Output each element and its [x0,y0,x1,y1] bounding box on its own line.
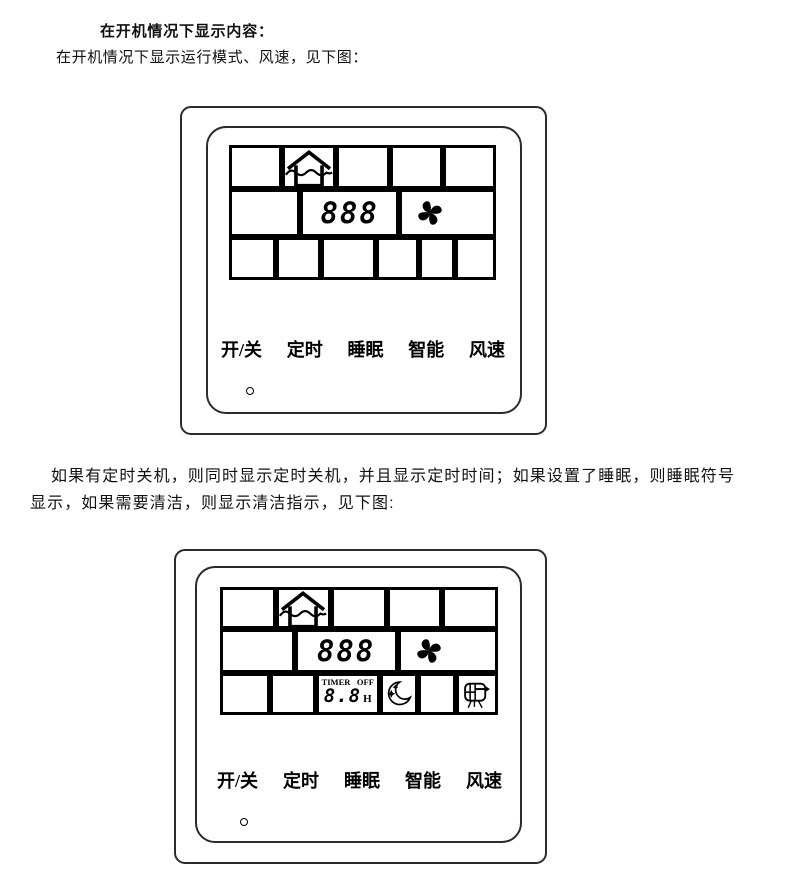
fan-cell [398,629,498,673]
lcd-cell [229,189,300,237]
house-auto-mode-icon [279,589,327,631]
lcd-cell [336,145,389,189]
fan-speed-icon [414,636,444,666]
timer-cell: TIMER OFF 8.8 H [316,673,380,715]
timer-hours-display: 8.8 [324,687,361,706]
temperature-display: 888 [320,199,378,228]
button-label-sleep: 睡眠 [344,767,380,793]
figure-controller-panel-on: 888 [180,106,547,435]
paragraph-line: 显示，如果需要清洁，则显示清洁指示，见下图: [30,490,778,517]
lcd-cell [419,237,456,280]
lcd-row-bottom [229,237,496,280]
lcd-cell [229,145,282,189]
moon-sleep-icon [385,680,413,708]
fan-cell [399,189,496,237]
temperature-display: 888 [317,637,375,666]
lcd-cell [270,673,315,715]
button-label-smart: 智能 [405,767,441,793]
figure-controller-panel-timer: 888 [174,549,547,864]
lcd-cell [220,673,270,715]
lcd-cell [229,237,276,280]
filter-clean-icon [462,679,493,710]
button-label-fanspeed: 风速 [469,336,505,362]
button-label-power: 开/关 [217,767,258,793]
document-page: 在开机情况下显示内容： 在开机情况下显示运行模式、风速，见下图： [0,0,790,876]
button-label-timer: 定时 [287,336,323,362]
lcd-grid: 888 [220,587,498,715]
paragraph-line: 如果有定时关机，则同时显示定时关机，并且显示定时时间；如果设置了睡眠，则睡眠符号 [30,463,778,490]
house-auto-mode-icon [285,148,333,190]
mode-cell [276,587,332,629]
button-label-timer: 定时 [283,767,319,793]
panel-face: 888 [206,126,522,414]
lcd-cell [387,587,443,629]
button-label-power: 开/关 [221,336,262,362]
button-label-smart: 智能 [408,336,444,362]
indicator-led [240,818,248,826]
fan-speed-icon [415,198,445,228]
section-heading: 在开机情况下显示内容： [100,20,274,41]
lcd-row-bottom: TIMER OFF 8.8 H [220,673,498,715]
lcd-cell [455,237,496,280]
lcd-row-middle: 888 [220,629,498,673]
intro-text: 在开机情况下显示运行模式、风速，见下图： [56,46,368,67]
indicator-led [246,387,254,395]
timer-unit-label: H [363,694,372,705]
panel-face: 888 [195,566,522,843]
lcd-cell [443,145,496,189]
lcd-cell [276,237,321,280]
lcd-cell [390,145,443,189]
button-label-sleep: 睡眠 [347,336,383,362]
lcd-cell [418,673,456,715]
sleep-cell [380,673,418,715]
mode-cell [282,145,336,189]
lcd-row-top [220,587,498,629]
button-label-fanspeed: 风速 [466,767,502,793]
temperature-cell: 888 [295,629,398,673]
button-label-row: 开/关 定时 睡眠 智能 风速 [197,767,520,793]
lcd-grid: 888 [229,145,496,280]
timer-value: 8.8 H [322,687,374,706]
button-label-row: 开/关 定时 睡眠 智能 风速 [208,336,520,362]
clean-cell [456,673,498,715]
lcd-cell [220,629,295,673]
lcd-cell [220,587,276,629]
body-paragraph: 如果有定时关机，则同时显示定时关机，并且显示定时时间；如果设置了睡眠，则睡眠符号… [30,463,778,517]
lcd-row-middle: 888 [229,189,496,237]
temperature-cell: 888 [300,189,399,237]
lcd-cell [331,587,387,629]
lcd-cell [442,587,498,629]
lcd-cell [321,237,376,280]
lcd-row-top [229,145,496,189]
lcd-cell [376,237,418,280]
